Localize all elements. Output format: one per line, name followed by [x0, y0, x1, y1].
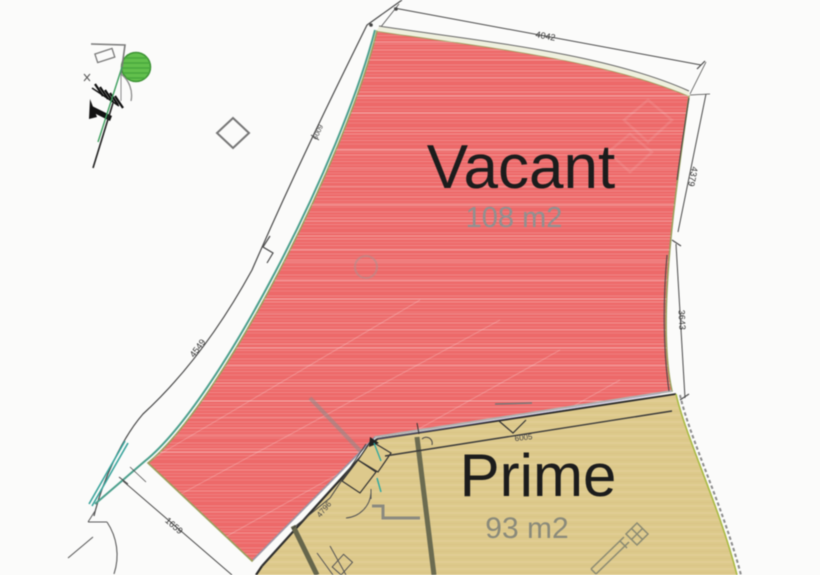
- svg-text:108 m2: 108 m2: [466, 202, 563, 234]
- svg-text:93 m2: 93 m2: [485, 512, 568, 545]
- svg-text:3643: 3643: [676, 310, 687, 331]
- svg-text:Prime: Prime: [460, 442, 617, 509]
- svg-text:Vacant: Vacant: [427, 133, 615, 202]
